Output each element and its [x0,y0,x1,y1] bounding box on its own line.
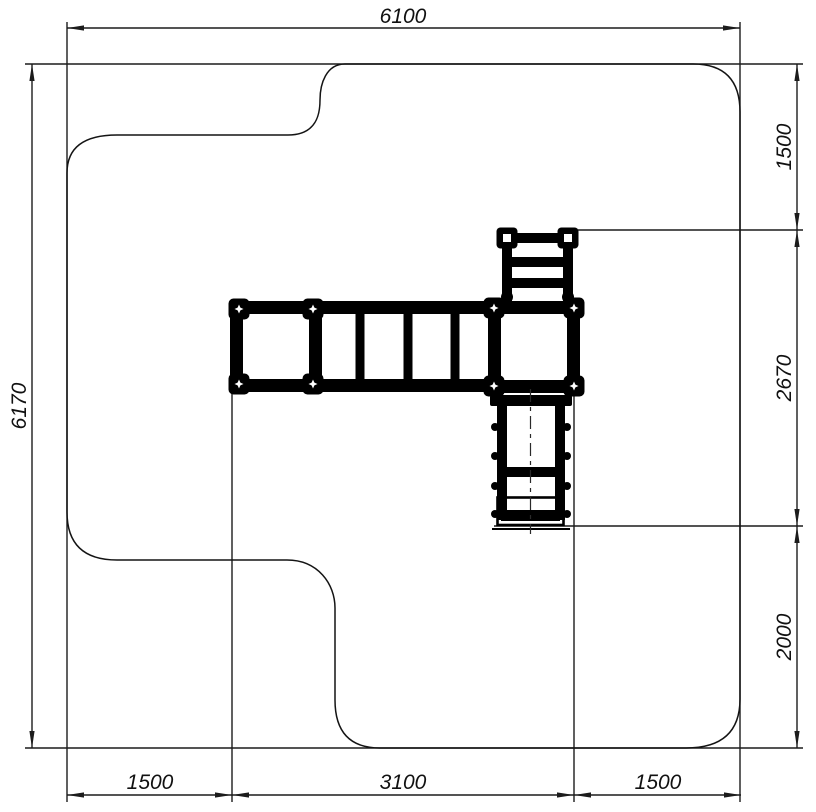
right-tower [484,298,585,397]
dim-label-right-2000: 2000 [773,613,796,661]
climbing-ladder [497,228,579,304]
bridge-rung [404,309,413,384]
safety-zone-outline [67,64,740,748]
bridge-rung [356,309,365,384]
play-structure [229,228,585,535]
dim-label-right-2670: 2670 [773,354,796,402]
dim-label-bottom-1500-left: 1500 [127,771,174,794]
dim-label-left: 6170 [8,382,31,429]
slide [490,389,572,534]
dimension-labels: 6100 6170 1500 2670 2000 1500 3100 1500 [8,5,796,794]
ladder-rung [512,278,563,288]
ladder-rung [512,257,563,267]
dimension-arrows [29,25,799,797]
dim-label-right-1500: 1500 [773,123,796,170]
bridge-rung [451,309,460,384]
left-tower [229,299,324,395]
dimension-lines [25,22,803,802]
dim-label-bottom-1500-right: 1500 [635,771,682,794]
drawing-sheet: 6100 6170 1500 2670 2000 1500 3100 1500 [0,0,816,812]
plan-drawing: 6100 6170 1500 2670 2000 1500 3100 1500 [0,0,816,812]
bridge-walkway [322,301,489,392]
dim-label-top: 6100 [380,5,427,28]
dim-label-bottom-3100: 3100 [380,771,427,794]
